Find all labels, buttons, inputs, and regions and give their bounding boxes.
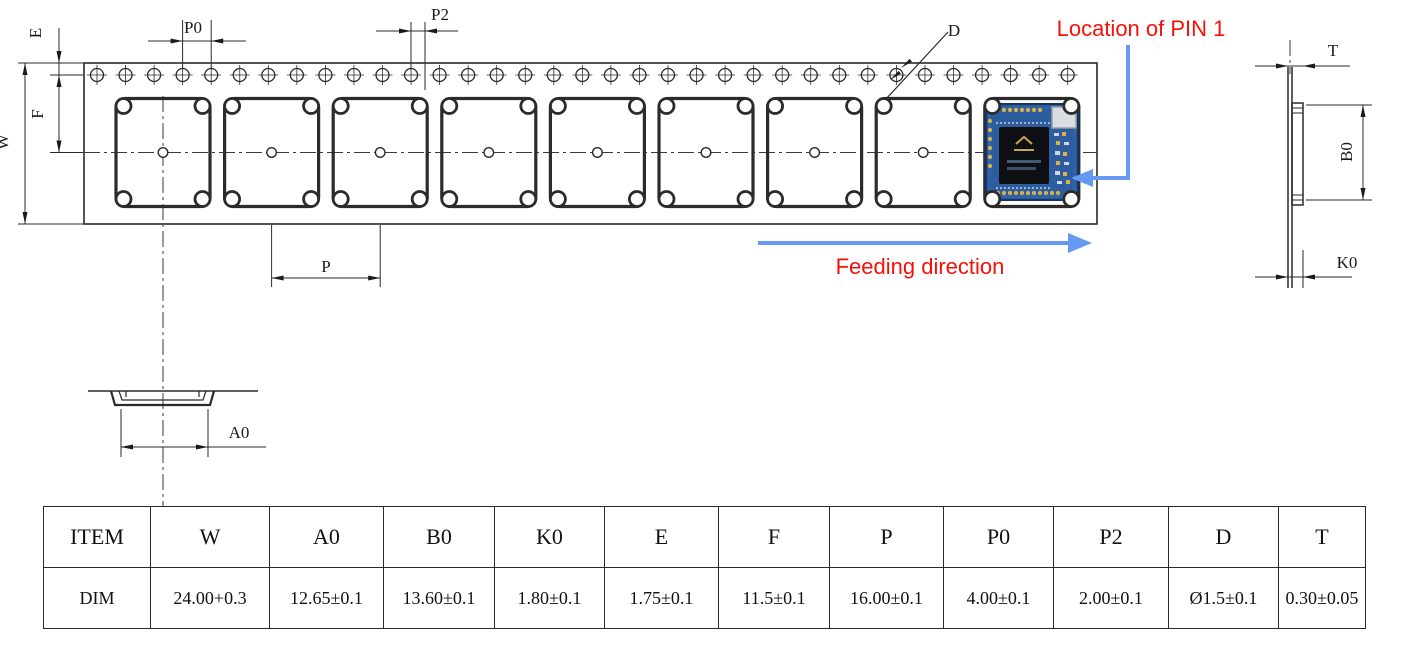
pocket-corner-ring: [768, 192, 783, 207]
pocket-corner-ring: [195, 99, 210, 114]
pocket-corner-ring: [116, 192, 131, 207]
component-module: [986, 104, 1078, 200]
dim-label-t: T: [1328, 41, 1339, 60]
pocket-center-hole: [918, 148, 928, 158]
table-cell: 16.00±0.1: [830, 568, 944, 629]
table-cell: DIM: [44, 568, 151, 629]
pocket-corner-ring: [521, 192, 536, 207]
pocket-center-hole: [593, 148, 603, 158]
pocket-corner-ring: [955, 192, 970, 207]
pocket-corner-ring: [442, 192, 457, 207]
pocket-corner-ring: [985, 192, 1000, 207]
table-cell: 24.00+0.3: [151, 568, 270, 629]
dim-label-p: P: [321, 257, 330, 276]
dimension-table: ITEM W A0 B0 K0 E F P P0 P2 D T DIM 24.0…: [43, 506, 1366, 629]
pocket-corner-ring: [876, 99, 891, 114]
dim-label-f: F: [28, 109, 47, 118]
table-cell: F: [719, 507, 830, 568]
center-lines: [84, 96, 1097, 507]
table-cell: ITEM: [44, 507, 151, 568]
pocket-corner-ring: [521, 99, 536, 114]
table-cell: 11.5±0.1: [719, 568, 830, 629]
tape-side-view: [1255, 40, 1372, 288]
pocket-corner-ring: [876, 192, 891, 207]
pocket-corner-ring: [629, 99, 644, 114]
pocket-corner-ring: [333, 192, 348, 207]
pocket-corner-ring: [659, 192, 674, 207]
pocket-corner-ring: [985, 99, 1000, 114]
pocket-corner-ring: [304, 192, 319, 207]
dim-label-e: E: [26, 28, 45, 38]
feeding-arrowhead-icon: [1068, 233, 1092, 253]
carrier-tape-drawing-page: W E F P0 P2 P A0 D T B0 K0 Location of P…: [0, 0, 1407, 651]
pocket-corner-ring: [1064, 192, 1079, 207]
pocket-corner-ring: [738, 99, 753, 114]
pin1-label: Location of PIN 1: [1057, 16, 1226, 41]
table-cell: 4.00±0.1: [944, 568, 1054, 629]
table-cell: 0.30±0.05: [1279, 568, 1366, 629]
pocket-corner-ring: [412, 192, 427, 207]
chip-marking: [1007, 160, 1041, 163]
pocket-corner-ring: [225, 99, 240, 114]
table-dim-row: DIM 24.00+0.3 12.65±0.1 13.60±0.1 1.80±0…: [44, 568, 1366, 629]
table-cell: Ø1.5±0.1: [1169, 568, 1279, 629]
table-cell: 1.80±0.1: [495, 568, 605, 629]
table-cell: P2: [1054, 507, 1169, 568]
dim-label-w: W: [0, 133, 12, 150]
dimension-lines: [18, 20, 948, 287]
pocket-corner-ring: [768, 99, 783, 114]
table-cell: 2.00±0.1: [1054, 568, 1169, 629]
dim-label-b0: B0: [1337, 142, 1356, 162]
table-cell: 13.60±0.1: [384, 568, 495, 629]
pocket-corner-ring: [304, 99, 319, 114]
pocket-corner-ring: [629, 192, 644, 207]
dim-label-p2: P2: [431, 5, 449, 24]
pocket-corner-ring: [847, 99, 862, 114]
pocket-corner-ring: [550, 192, 565, 207]
dim-label-p0: P0: [184, 18, 202, 37]
dim-label-k0: K0: [1337, 253, 1358, 272]
table-cell: P: [830, 507, 944, 568]
dim-label-d: D: [948, 21, 960, 40]
table-header-row: ITEM W A0 B0 K0 E F P P0 P2 D T: [44, 507, 1366, 568]
table-cell: A0: [270, 507, 384, 568]
table-cell: T: [1279, 507, 1366, 568]
pocket-corner-ring: [955, 99, 970, 114]
table-cell: D: [1169, 507, 1279, 568]
pocket-center-hole: [158, 148, 168, 158]
pocket-corner-ring: [412, 99, 427, 114]
table-cell: E: [605, 507, 719, 568]
table-cell: W: [151, 507, 270, 568]
chip-marking: [1007, 167, 1036, 170]
table-cell: B0: [384, 507, 495, 568]
table-cell: 12.65±0.1: [270, 568, 384, 629]
pocket-center-hole: [375, 148, 385, 158]
pocket-corner-ring: [847, 192, 862, 207]
pocket-center-hole: [701, 148, 711, 158]
main-ic-chip: [999, 127, 1049, 184]
pocket-center-hole: [810, 148, 820, 158]
pocket-corner-ring: [659, 99, 674, 114]
dim-label-a0: A0: [229, 423, 250, 442]
pocket-center-hole: [267, 148, 277, 158]
feeding-direction-label: Feeding direction: [836, 254, 1005, 279]
pocket-center-hole: [484, 148, 494, 158]
pocket-corner-ring: [333, 99, 348, 114]
table-cell: K0: [495, 507, 605, 568]
pocket-corner-ring: [738, 192, 753, 207]
feeding-direction-annotation: [758, 233, 1092, 253]
pocket-corner-ring: [116, 99, 131, 114]
pocket-corner-ring: [225, 192, 240, 207]
pocket-corner-ring: [1064, 99, 1079, 114]
table-cell: 1.75±0.1: [605, 568, 719, 629]
pocket-corner-ring: [442, 99, 457, 114]
pocket-corner-ring: [195, 192, 210, 207]
pocket-corner-ring: [550, 99, 565, 114]
table-cell: P0: [944, 507, 1054, 568]
sprocket-holes: [87, 65, 1078, 85]
